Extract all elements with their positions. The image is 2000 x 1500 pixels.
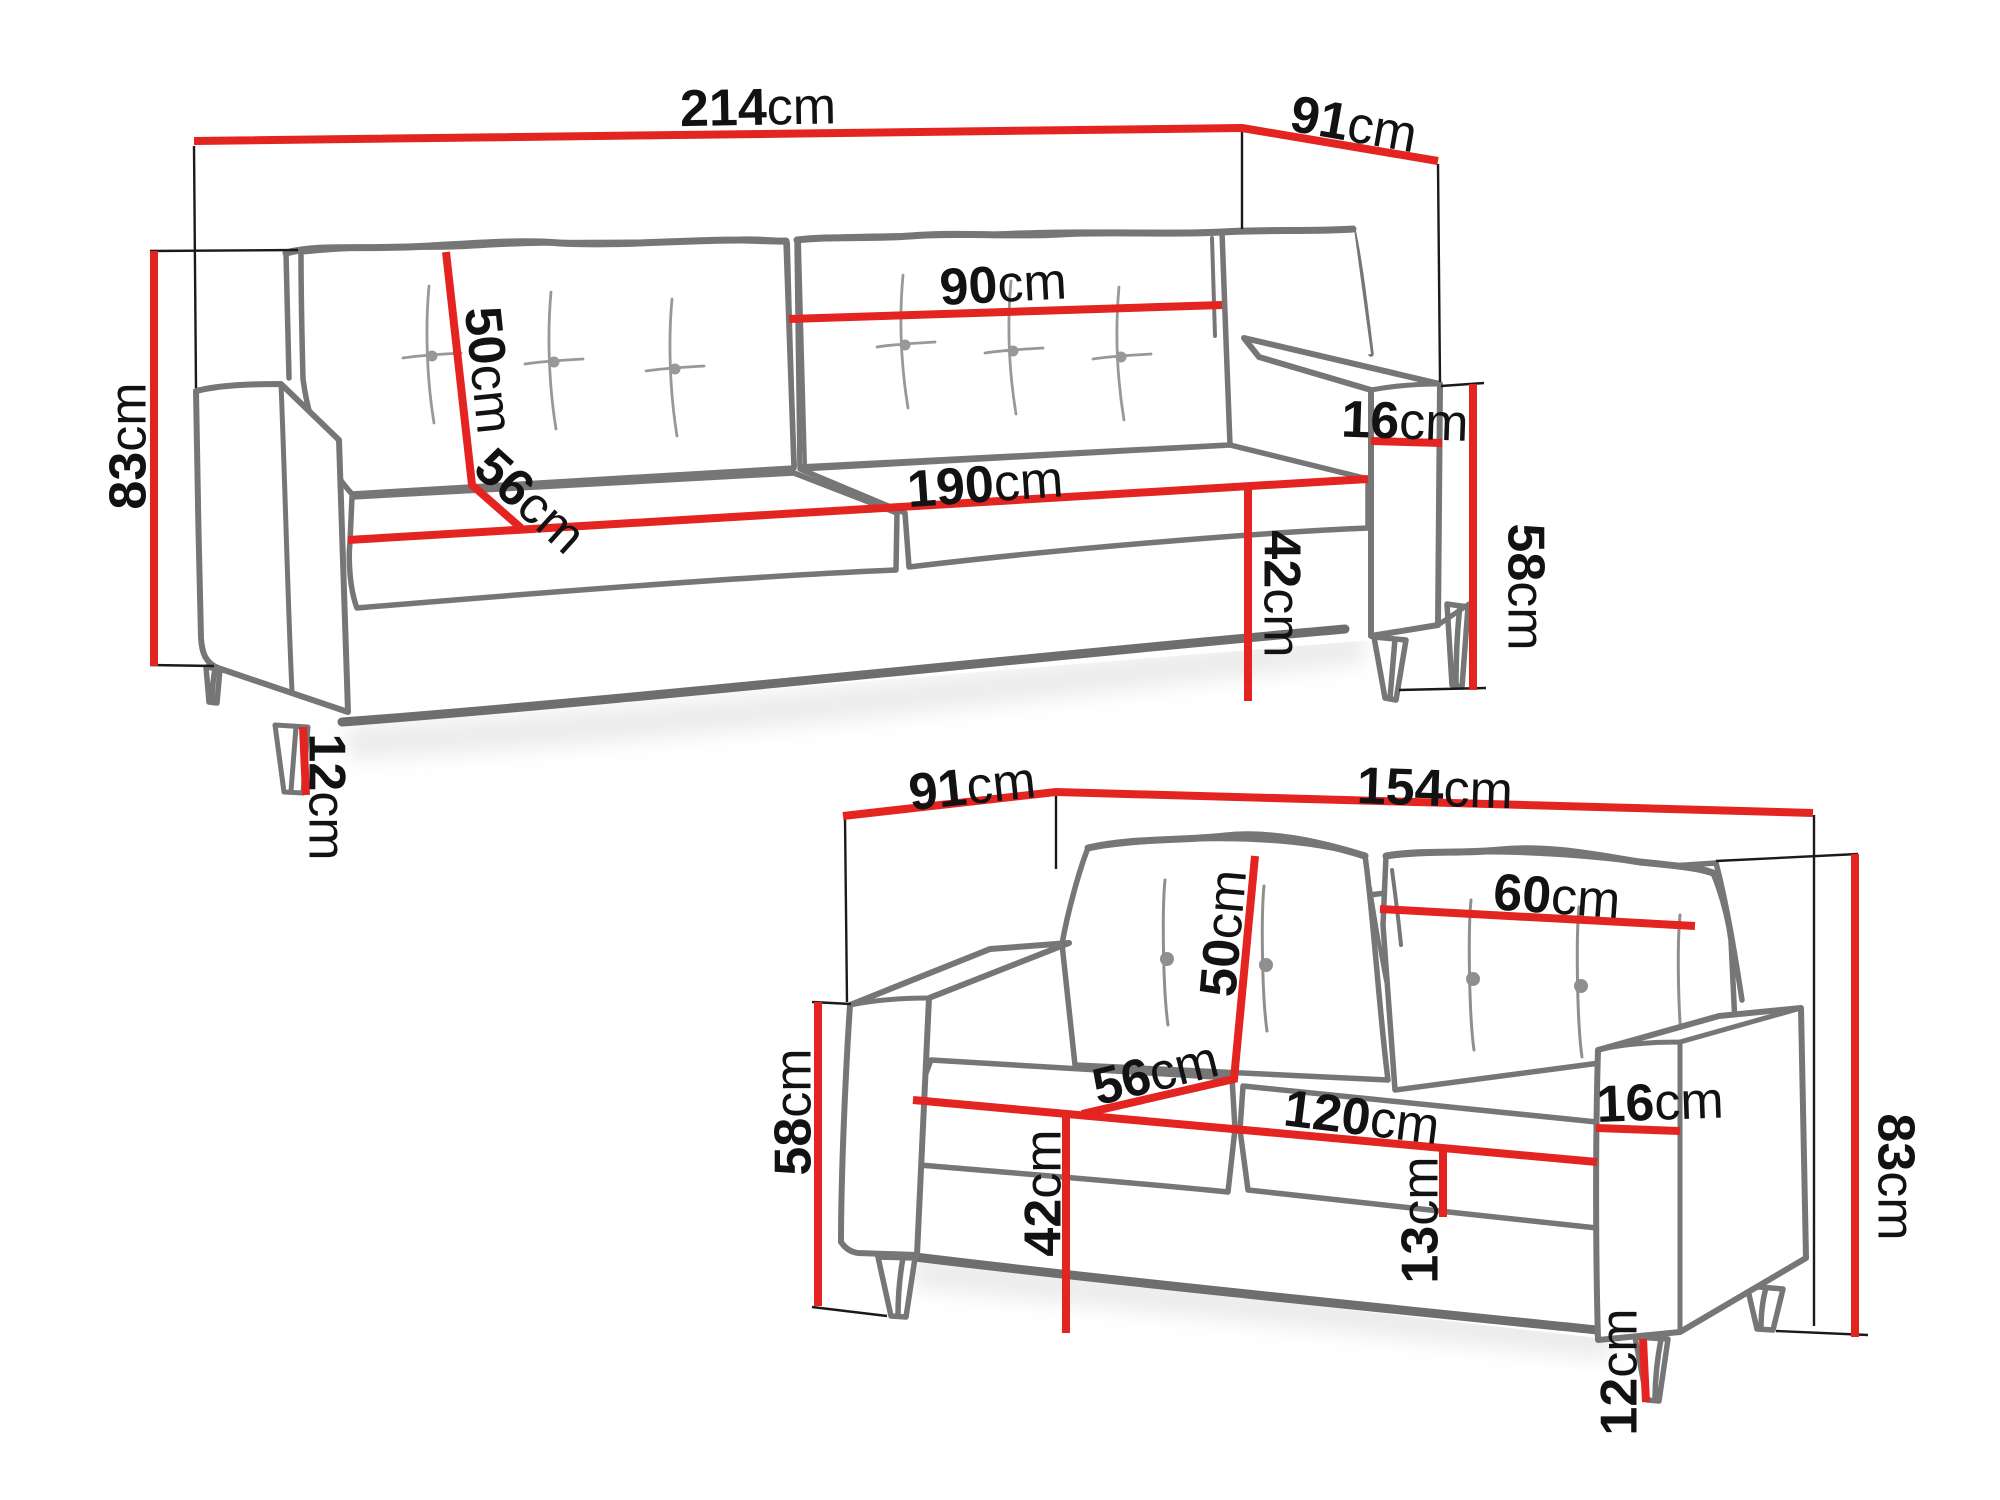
svg-text:90cm: 90cm: [938, 252, 1068, 317]
svg-text:12cm: 12cm: [1591, 1308, 1649, 1435]
svg-text:83cm: 83cm: [100, 382, 158, 509]
svg-text:50cm: 50cm: [1189, 867, 1258, 999]
svg-text:58cm: 58cm: [765, 1048, 823, 1175]
svg-text:42cm: 42cm: [1015, 1129, 1073, 1256]
svg-text:42cm: 42cm: [1252, 530, 1310, 657]
svg-text:154cm: 154cm: [1356, 757, 1514, 820]
svg-text:214cm: 214cm: [679, 77, 836, 138]
svg-text:16cm: 16cm: [1596, 1072, 1725, 1134]
svg-text:13cm: 13cm: [1392, 1156, 1450, 1283]
svg-text:12cm: 12cm: [297, 733, 355, 860]
svg-text:60cm: 60cm: [1491, 863, 1622, 930]
svg-text:58cm: 58cm: [1496, 523, 1554, 650]
svg-text:83cm: 83cm: [1866, 1113, 1924, 1240]
svg-text:190cm: 190cm: [905, 450, 1065, 519]
svg-text:16cm: 16cm: [1340, 391, 1469, 453]
